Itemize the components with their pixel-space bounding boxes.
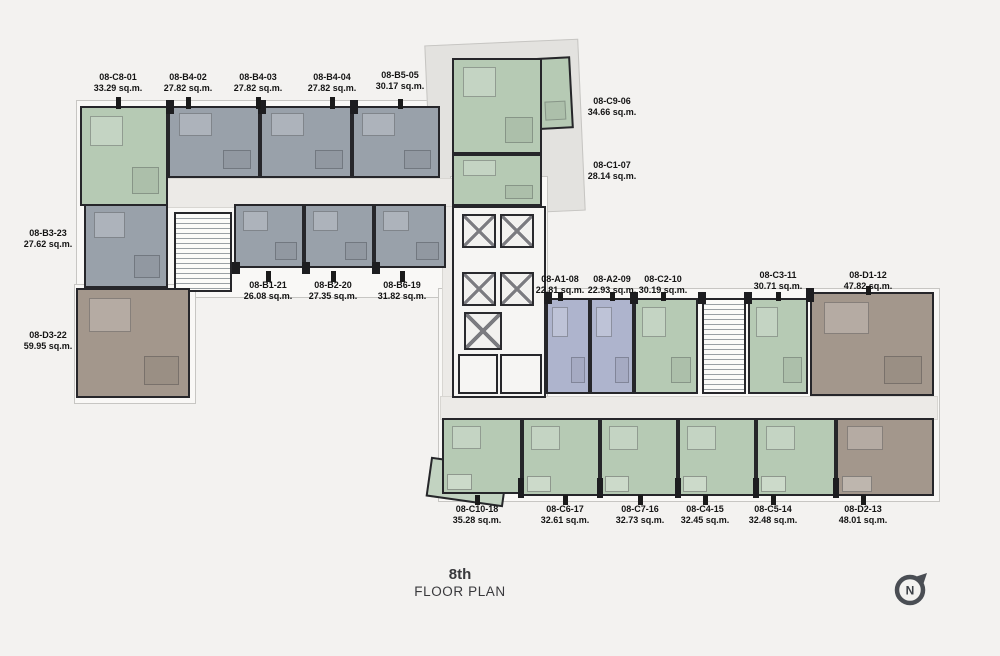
floor-plan-label: FLOOR PLAN	[400, 584, 520, 599]
unit-08-b3-23	[84, 204, 168, 288]
wall-segment	[372, 262, 380, 274]
wall-segment	[350, 100, 358, 114]
unit-label-08-c6-17: 08-C6-1732.61 sq.m.	[527, 504, 603, 525]
unit-08-c7-16	[600, 418, 678, 496]
compass-n-label: N	[906, 584, 915, 598]
corridor-right-wing	[440, 396, 938, 420]
unit-label-08-c5-14: 08-C5-1432.48 sq.m.	[735, 504, 811, 525]
unit-08-b4-04	[352, 106, 440, 178]
unit-08-c8-01	[80, 106, 168, 206]
unit-08-c1-07	[452, 154, 542, 206]
unit-08-a2-09	[590, 298, 634, 394]
leader-tick	[186, 97, 191, 109]
unit-label-08-c10-18: 08-C10-1835.28 sq.m.	[439, 504, 515, 525]
leader-tick	[256, 97, 261, 109]
core-room-2	[500, 354, 542, 394]
wall-segment	[302, 262, 310, 274]
unit-label-08-d2-13: 08-D2-1348.01 sq.m.	[825, 504, 901, 525]
floor-plan-canvas: 08-C8-0133.29 sq.m. 08-B4-0227.82 sq.m. …	[0, 0, 1000, 656]
leader-tick	[330, 97, 335, 109]
unit-label-08-b4-02: 08-B4-0227.82 sq.m.	[150, 72, 226, 93]
wall-segment	[744, 292, 752, 304]
elevator-5	[464, 312, 502, 350]
unit-08-b4-03	[260, 106, 352, 178]
leader-tick	[116, 97, 121, 109]
unit-08-a1-08	[546, 298, 590, 394]
leader-tick	[776, 292, 781, 301]
unit-08-c2-10	[634, 298, 698, 394]
unit-label-08-c9-06: 08-C9-0634.66 sq.m.	[574, 96, 650, 117]
wall-segment	[597, 478, 603, 498]
wall-segment	[232, 262, 240, 274]
wall-segment	[166, 100, 174, 114]
unit-08-c3-11	[748, 298, 808, 394]
unit-08-b6-19	[374, 204, 446, 268]
unit-08-b5-05	[452, 58, 542, 154]
wall-segment	[518, 478, 524, 498]
unit-08-c10-18	[442, 418, 522, 494]
unit-08-b4-02	[168, 106, 260, 178]
unit-08-b2-20	[304, 204, 374, 268]
elevator-1	[462, 214, 496, 248]
core-room-1	[458, 354, 498, 394]
unit-08-c6-17	[522, 418, 600, 496]
unit-label-08-d3-22: 08-D3-2259.95 sq.m.	[10, 330, 86, 351]
wall-segment	[833, 478, 839, 498]
unit-label-08-b4-04: 08-B4-0427.82 sq.m.	[294, 72, 370, 93]
floor-number: 8th	[400, 566, 520, 583]
unit-label-08-c4-15: 08-C4-1532.45 sq.m.	[667, 504, 743, 525]
unit-08-d1-12	[810, 292, 934, 396]
unit-label-08-b6-19: 08-B6-1931.82 sq.m.	[364, 280, 440, 301]
unit-08-d2-13	[836, 418, 934, 496]
unit-label-08-c2-10: 08-C2-1030.19 sq.m.	[625, 274, 701, 295]
wall-segment	[753, 478, 759, 498]
unit-label-08-b5-05: 08-B5-0530.17 sq.m.	[362, 70, 438, 91]
unit-label-08-b2-20: 08-B2-2027.35 sq.m.	[295, 280, 371, 301]
floor-title: 8th FLOOR PLAN	[400, 566, 520, 599]
unit-label-08-b4-03: 08-B4-0327.82 sq.m.	[220, 72, 296, 93]
stairwell-left	[174, 212, 232, 292]
unit-label-08-c1-07: 08-C1-0728.14 sq.m.	[574, 160, 650, 181]
unit-label-08-c8-01: 08-C8-0133.29 sq.m.	[80, 72, 156, 93]
unit-08-b1-21	[234, 204, 304, 268]
stairwell-right	[702, 298, 746, 394]
unit-label-08-d1-12: 08-D1-1247.82 sq.m.	[830, 270, 906, 291]
elevator-2	[500, 214, 534, 248]
elevator-3	[462, 272, 496, 306]
unit-label-08-b3-23: 08-B3-2327.62 sq.m.	[10, 228, 86, 249]
unit-08-d3-22	[76, 288, 190, 398]
wall-segment	[675, 478, 681, 498]
unit-label-08-c3-11: 08-C3-1130.71 sq.m.	[740, 270, 816, 291]
compass-icon: N	[888, 566, 934, 612]
leader-tick	[398, 99, 403, 109]
unit-08-c4-15	[678, 418, 756, 496]
unit-08-c5-14	[756, 418, 836, 496]
